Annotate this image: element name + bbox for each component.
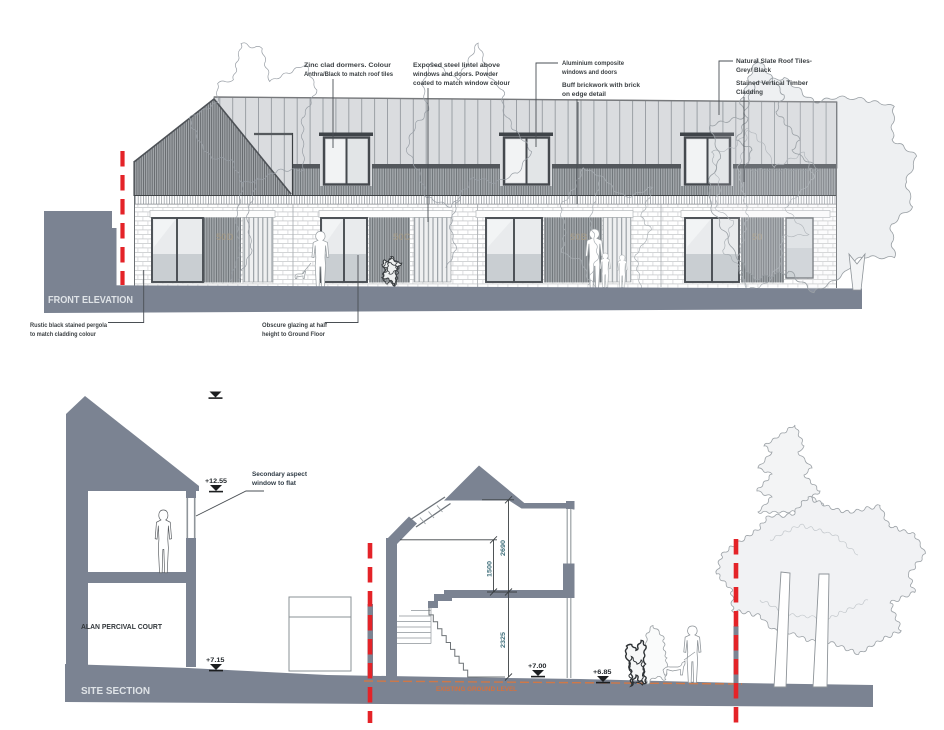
svg-text:+7.00: +7.00 bbox=[528, 663, 547, 670]
svg-text:2325: 2325 bbox=[500, 632, 507, 648]
svg-text:Rustic black stained pergola: Rustic black stained pergola bbox=[30, 322, 107, 329]
svg-text:on edge detail: on edge detail bbox=[562, 91, 606, 98]
svg-text:50B: 50B bbox=[570, 232, 588, 243]
svg-text:Anthra/Black to match roof til: Anthra/Black to match roof tiles bbox=[304, 71, 393, 78]
svg-text:Grey/ Black: Grey/ Black bbox=[736, 67, 771, 74]
svg-text:1500: 1500 bbox=[487, 561, 494, 577]
svg-text:Stained Vertical Timber: Stained Vertical Timber bbox=[736, 80, 808, 87]
svg-text:height to Ground Floor: height to Ground Floor bbox=[262, 331, 325, 338]
svg-text:window to flat: window to flat bbox=[251, 480, 297, 487]
svg-text:windows and doors: windows and doors bbox=[561, 69, 617, 76]
svg-text:Cladding: Cladding bbox=[736, 89, 763, 96]
svg-text:FRONT ELEVATION: FRONT ELEVATION bbox=[48, 295, 133, 306]
svg-text:+6.85: +6.85 bbox=[593, 669, 612, 676]
svg-text:Aluminium composite: Aluminium composite bbox=[562, 60, 624, 67]
svg-text:Natural Slate Roof Tiles-: Natural Slate Roof Tiles- bbox=[736, 58, 812, 65]
svg-text:Secondary aspect: Secondary aspect bbox=[252, 471, 308, 478]
svg-text:+12.55: +12.55 bbox=[205, 478, 227, 485]
svg-text:to match cladding colour: to match cladding colour bbox=[30, 331, 96, 338]
svg-text:windows and doors. Powder: windows and doors. Powder bbox=[412, 71, 498, 78]
svg-text:Exposed steel lintel above: Exposed steel lintel above bbox=[413, 62, 500, 69]
svg-text:Obscure glazing at half: Obscure glazing at half bbox=[262, 322, 328, 329]
svg-text:50D: 50D bbox=[216, 232, 234, 243]
svg-text:50C: 50C bbox=[393, 232, 411, 243]
svg-text:ALAN PERCIVAL COURT: ALAN PERCIVAL COURT bbox=[81, 622, 162, 631]
svg-text:EXISTING GROUND LEVEL: EXISTING GROUND LEVEL bbox=[436, 686, 517, 693]
svg-text:Zinc clad dormers. Colour: Zinc clad dormers. Colour bbox=[304, 62, 391, 69]
svg-text:2690: 2690 bbox=[500, 540, 507, 556]
svg-text:+7.15: +7.15 bbox=[206, 657, 225, 664]
svg-text:coated to match window colour: coated to match window colour bbox=[413, 80, 510, 87]
svg-text:SITE SECTION: SITE SECTION bbox=[81, 686, 150, 697]
svg-text:Buff brickwork with brick: Buff brickwork with brick bbox=[562, 82, 640, 89]
